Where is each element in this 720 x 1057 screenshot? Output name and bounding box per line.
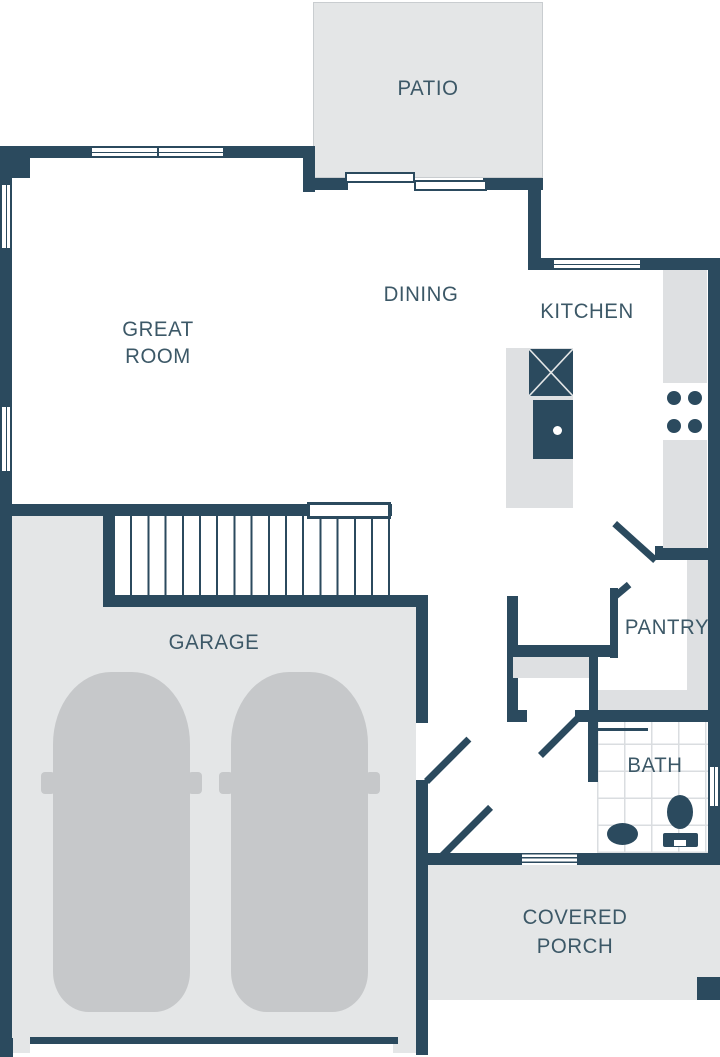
pantry-shelf-bottom [598, 690, 708, 710]
toilet-seat-notch [674, 840, 686, 846]
hall-left-wall-foot [507, 710, 527, 722]
great-room-left-window-lower [0, 405, 12, 473]
porch-label-line2: PORCH [537, 935, 613, 959]
pantry-label: PANTRY [625, 616, 709, 640]
bath-window [708, 765, 720, 808]
great-room-label-line1: GREAT [122, 318, 194, 342]
floor-plan-canvas: PATIO GREAT ROOM DINING KITCHEN GARAGE [0, 0, 720, 1057]
window-glass-line [714, 767, 715, 806]
car-left-mirror-left-icon [41, 772, 55, 794]
stairs-treads [115, 516, 390, 595]
stairs-bottom-wall [103, 595, 428, 607]
garage-entry-door-swing [424, 737, 471, 784]
window-glass-line [6, 185, 7, 248]
porch-top-wall-right [577, 853, 720, 865]
garage-right-wall-lower [416, 780, 428, 1055]
garage-door-jamb-left [13, 1037, 30, 1053]
patio-step-wall [303, 158, 315, 192]
porch-floor [428, 865, 720, 1000]
porch-post [697, 977, 720, 1000]
kitchen-door-swing [612, 521, 658, 563]
cooktop-burner-icon [688, 419, 702, 433]
sliding-door-panel-right [414, 180, 487, 191]
garage-door-header [30, 1037, 398, 1044]
sink-faucet-dot-icon [553, 426, 562, 435]
stairs-landing [307, 502, 391, 519]
window-glass-line [554, 264, 640, 265]
great-room-left-window-upper [0, 183, 12, 250]
window-glass-line [6, 407, 7, 471]
kitchen-label: KITCHEN [540, 300, 633, 324]
kitchen-top-window [552, 258, 642, 270]
patio-bottom-wall-left [315, 178, 348, 190]
car-left-mirror-right-icon [188, 772, 202, 794]
great-room-label-line2: ROOM [125, 345, 191, 369]
bath-shower-edge [597, 728, 648, 731]
patio-right-wall [528, 178, 541, 270]
patio-label: PATIO [397, 77, 458, 101]
bath-left-wall [588, 722, 598, 782]
cooktop-burner-icon [688, 391, 702, 405]
window-divider [157, 148, 159, 156]
dining-label: DINING [384, 283, 459, 307]
car-right-icon [231, 672, 368, 1012]
stairs-left-wall [103, 516, 115, 607]
bath-label: BATH [627, 754, 682, 778]
garage-floor-upper [12, 516, 103, 607]
car-right-mirror-left-icon [219, 772, 233, 794]
pantry-bottom-wall [598, 710, 720, 722]
hall-door-swing [538, 713, 583, 758]
car-right-mirror-right-icon [366, 772, 380, 794]
car-left-icon [53, 672, 190, 1012]
front-door-swing [440, 805, 493, 858]
top-left-corner-post [12, 158, 30, 178]
great-room-top-window [90, 146, 225, 158]
right-wall-upper [708, 270, 720, 765]
cooktop-burner-icon [667, 391, 681, 405]
toilet-bowl-icon [667, 795, 693, 829]
garage-right-wall-upper [416, 595, 428, 723]
cooktop-burner-icon [667, 419, 681, 433]
closet-shelf [513, 657, 590, 678]
front-entry-threshold [522, 853, 577, 865]
porch-top-wall-left [416, 853, 522, 865]
closet-top-wall [512, 645, 618, 657]
sliding-door-panel-left [345, 172, 415, 183]
pantry-door-swing [610, 582, 631, 602]
porch-label-line1: COVERED [523, 906, 628, 930]
garage-door-panel [35, 1044, 393, 1057]
bath-sink-icon [607, 823, 638, 845]
dishwasher-icon [529, 349, 573, 396]
garage-label: GARAGE [169, 631, 260, 655]
